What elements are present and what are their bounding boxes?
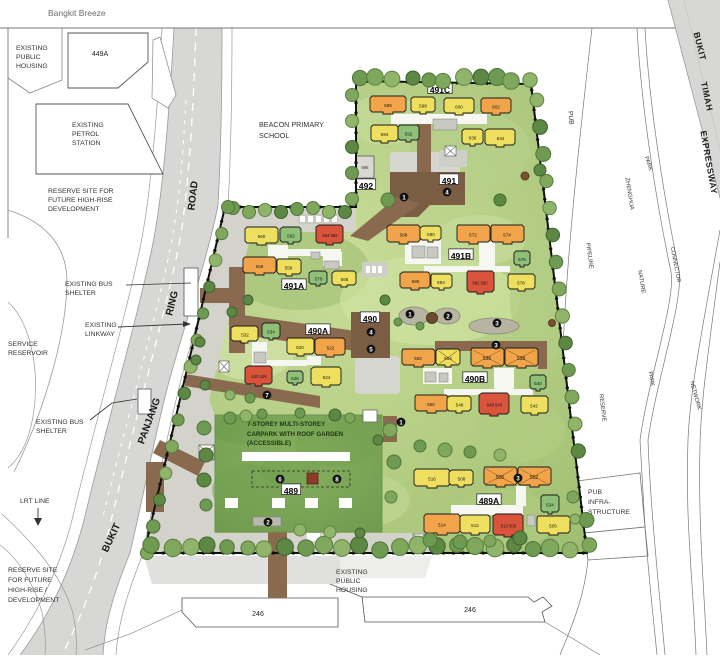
svg-text:4: 4 — [445, 189, 449, 196]
svg-text:580: 580 — [427, 232, 435, 237]
svg-text:524: 524 — [323, 375, 331, 380]
svg-text:634: 634 — [497, 136, 505, 141]
svg-text:EXISTING BUS: EXISTING BUS — [36, 419, 84, 426]
svg-text:490A: 490A — [308, 326, 328, 336]
svg-text:636: 636 — [469, 135, 477, 140]
svg-text:PUB: PUB — [566, 111, 574, 126]
svg-text:SHELTER: SHELTER — [65, 290, 96, 297]
svg-text:3: 3 — [516, 475, 520, 482]
svg-text:560: 560 — [258, 234, 266, 239]
svg-text:SERVICE: SERVICE — [8, 341, 38, 348]
svg-text:489A: 489A — [479, 496, 499, 506]
svg-text:EXISTING: EXISTING — [72, 122, 104, 129]
svg-text:LRT LINE: LRT LINE — [20, 498, 50, 505]
svg-text:540: 540 — [534, 381, 542, 386]
svg-text:696: 696 — [362, 165, 370, 170]
svg-text:568: 568 — [341, 277, 349, 282]
svg-text:7: 7 — [265, 392, 269, 399]
svg-text:538: 538 — [517, 356, 526, 362]
svg-text:449A: 449A — [92, 51, 109, 58]
svg-text:INFRA-: INFRA- — [588, 499, 611, 506]
svg-text:492: 492 — [359, 181, 373, 191]
svg-text:8: 8 — [335, 476, 339, 483]
svg-text:1: 1 — [399, 419, 403, 426]
svg-text:582 580: 582 580 — [472, 280, 488, 285]
svg-text:600: 600 — [455, 104, 463, 109]
svg-text:491B: 491B — [451, 251, 471, 261]
svg-text:516: 516 — [428, 476, 436, 481]
svg-text:LINKWAY: LINKWAY — [85, 331, 115, 338]
svg-text:552: 552 — [414, 356, 422, 361]
svg-text:522: 522 — [327, 345, 335, 350]
svg-text:550: 550 — [427, 402, 435, 407]
svg-text:SCHOOL: SCHOOL — [259, 131, 289, 140]
svg-text:PETROL: PETROL — [72, 131, 99, 138]
svg-text:585: 585 — [412, 279, 420, 284]
svg-text:1: 1 — [402, 194, 406, 201]
svg-text:556: 556 — [285, 265, 293, 270]
svg-text:505: 505 — [549, 523, 557, 528]
svg-text:RESERVE SITE: RESERVE SITE — [8, 567, 58, 574]
svg-text:EXISTING BUS: EXISTING BUS — [65, 281, 113, 288]
svg-text:2: 2 — [266, 519, 270, 526]
svg-text:490: 490 — [363, 314, 377, 324]
svg-text:Bangkit Breeze: Bangkit Breeze — [48, 8, 106, 18]
svg-text:574: 574 — [503, 232, 511, 237]
svg-text:489: 489 — [284, 486, 298, 496]
svg-text:PUBLIC: PUBLIC — [16, 54, 41, 61]
svg-text:5: 5 — [369, 346, 373, 353]
svg-text:534: 534 — [267, 329, 275, 334]
svg-text:584: 584 — [437, 280, 445, 285]
svg-text:(ACCESSIBLE): (ACCESSIBLE) — [247, 440, 291, 447]
svg-text:510 508: 510 508 — [501, 523, 517, 528]
svg-text:3: 3 — [495, 320, 499, 327]
svg-text:562: 562 — [287, 233, 295, 238]
svg-text:536: 536 — [483, 356, 492, 362]
svg-text:502: 502 — [530, 475, 539, 481]
svg-text:578: 578 — [517, 280, 525, 285]
svg-text:526: 526 — [291, 376, 299, 381]
svg-text:570: 570 — [315, 276, 323, 281]
svg-text:598: 598 — [419, 103, 427, 108]
svg-text:2: 2 — [446, 313, 450, 320]
svg-text:RESERVOIR: RESERVOIR — [8, 350, 48, 357]
svg-text:BEACON PRIMARY: BEACON PRIMARY — [259, 120, 324, 129]
svg-text:520: 520 — [296, 345, 304, 350]
svg-text:512: 512 — [471, 523, 479, 528]
svg-text:EXISTING: EXISTING — [336, 569, 368, 576]
svg-text:PUBLIC: PUBLIC — [336, 578, 361, 585]
svg-text:514: 514 — [438, 522, 446, 527]
svg-text:246: 246 — [464, 607, 476, 614]
svg-text:491A: 491A — [284, 281, 304, 291]
svg-text:3: 3 — [494, 342, 498, 349]
svg-text:490B: 490B — [465, 374, 485, 384]
svg-text:572: 572 — [469, 232, 477, 237]
svg-text:558: 558 — [256, 264, 264, 269]
svg-text:534: 534 — [546, 502, 554, 507]
svg-text:546 544: 546 544 — [487, 402, 503, 407]
svg-text:4: 4 — [369, 329, 373, 336]
svg-text:RESERVE SITE FOR: RESERVE SITE FOR — [48, 188, 114, 195]
svg-text:DEVELOPMENT: DEVELOPMENT — [48, 206, 99, 213]
svg-text:594: 594 — [381, 132, 389, 137]
svg-text:PUB: PUB — [588, 489, 602, 496]
svg-text:491: 491 — [442, 176, 456, 186]
svg-text:542: 542 — [530, 403, 538, 408]
svg-text:EXISTING: EXISTING — [16, 45, 48, 52]
svg-text:HOUSING: HOUSING — [16, 63, 48, 70]
svg-text:246: 246 — [252, 611, 264, 618]
svg-text:CARPARK WITH ROOF GARDEN: CARPARK WITH ROOF GARDEN — [247, 431, 344, 438]
svg-text:FUTURE HIGH-RISE: FUTURE HIGH-RISE — [48, 197, 113, 204]
svg-text:564 566: 564 566 — [322, 233, 338, 238]
svg-text:STATION: STATION — [72, 140, 101, 147]
svg-text:548: 548 — [456, 402, 464, 407]
svg-text:SHELTER: SHELTER — [36, 428, 67, 435]
svg-text:6: 6 — [278, 476, 282, 483]
svg-text:602: 602 — [492, 104, 500, 109]
svg-text:592: 592 — [405, 131, 413, 136]
svg-text:532: 532 — [241, 332, 249, 337]
svg-text:FOR FUTURE: FOR FUTURE — [8, 577, 52, 584]
svg-text:EXISTING: EXISTING — [85, 322, 117, 329]
svg-text:595: 595 — [384, 103, 392, 108]
svg-text:DEVELOPMENT: DEVELOPMENT — [8, 597, 59, 604]
svg-text:530 528: 530 528 — [251, 374, 267, 379]
svg-text:588: 588 — [400, 232, 408, 237]
svg-text:HIGH-RISE /: HIGH-RISE / — [8, 587, 47, 594]
svg-text:1: 1 — [408, 311, 412, 318]
svg-text:7-STOREY MULTI-STOREY: 7-STOREY MULTI-STOREY — [247, 421, 326, 428]
svg-text:506: 506 — [496, 475, 505, 481]
svg-text:576: 576 — [518, 257, 526, 262]
svg-text:564: 564 — [444, 356, 452, 361]
svg-text:HOUSING: HOUSING — [336, 587, 368, 594]
svg-text:508: 508 — [458, 476, 466, 481]
svg-text:STRUCTURE: STRUCTURE — [588, 509, 630, 516]
